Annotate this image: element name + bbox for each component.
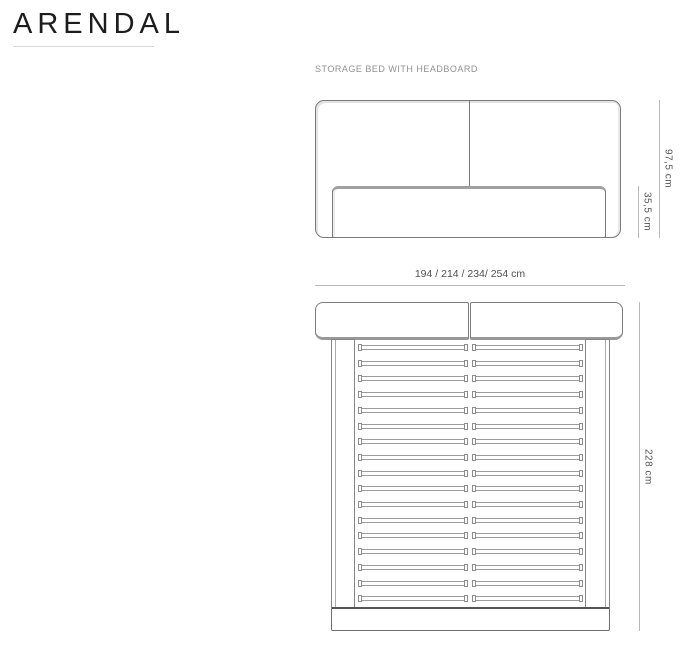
slat-clip xyxy=(464,344,468,351)
slat-clip xyxy=(358,423,362,430)
slat-clip xyxy=(579,485,583,492)
slat-clip xyxy=(358,407,362,414)
slat-left xyxy=(358,392,468,397)
dim-label-length: 228 cm xyxy=(642,302,654,631)
slat-clip xyxy=(472,595,476,602)
dim-line-width xyxy=(315,285,625,286)
slat-clip xyxy=(579,391,583,398)
slat-clip xyxy=(464,454,468,461)
slat-left xyxy=(358,518,468,523)
slat-left xyxy=(358,533,468,538)
spec-sheet-page: ARENDAL STORAGE BED WITH HEADBOARD 97,5 … xyxy=(0,0,690,650)
slat-clip xyxy=(464,532,468,539)
side-rail-right xyxy=(585,339,610,608)
slat-clip xyxy=(464,517,468,524)
slat-left xyxy=(358,455,468,460)
slat-left xyxy=(358,471,468,476)
slat-clip xyxy=(464,485,468,492)
slat-clip xyxy=(472,564,476,571)
slat-clip xyxy=(358,595,362,602)
slat-clip xyxy=(464,470,468,477)
slat-right xyxy=(472,486,583,491)
slat-clip xyxy=(464,595,468,602)
slat-clip xyxy=(579,548,583,555)
brand-title: ARENDAL xyxy=(13,8,185,41)
slat-clip xyxy=(579,407,583,414)
slat-right xyxy=(472,533,583,538)
dim-line-length xyxy=(639,302,640,631)
slat-clip xyxy=(579,580,583,587)
slat-left xyxy=(358,408,468,413)
side-rail-right-edge-line xyxy=(605,340,606,607)
slat-clip xyxy=(358,470,362,477)
slat-clip xyxy=(464,564,468,571)
dim-line-base-height xyxy=(638,186,639,238)
slat-right xyxy=(472,392,583,397)
headboard-top-right-panel xyxy=(470,302,623,340)
slat-clip xyxy=(579,375,583,382)
slat-clip xyxy=(472,501,476,508)
slat-clip xyxy=(579,423,583,430)
slat-clip xyxy=(358,391,362,398)
slat-clip xyxy=(464,391,468,398)
slat-clip xyxy=(579,470,583,477)
slat-right xyxy=(472,581,583,586)
headboard-top-left-panel xyxy=(315,302,469,340)
slat-clip xyxy=(472,391,476,398)
slat-right xyxy=(472,565,583,570)
slat-right xyxy=(472,345,583,350)
slat-clip xyxy=(472,517,476,524)
slat-clip xyxy=(358,344,362,351)
slat-left xyxy=(358,502,468,507)
slat-clip xyxy=(579,438,583,445)
dim-line-total-height xyxy=(659,100,660,238)
slat-left xyxy=(358,596,468,601)
slat-right xyxy=(472,455,583,460)
slat-left xyxy=(358,345,468,350)
slat-clip xyxy=(472,485,476,492)
slat-clip xyxy=(579,532,583,539)
slat-left xyxy=(358,361,468,366)
bed-base-front xyxy=(332,186,606,238)
slat-left xyxy=(358,549,468,554)
slat-clip xyxy=(579,501,583,508)
slat-clip xyxy=(472,344,476,351)
slat-clip xyxy=(472,548,476,555)
slat-clip xyxy=(358,548,362,555)
slat-right xyxy=(472,439,583,444)
slat-right xyxy=(472,596,583,601)
slat-clip xyxy=(358,360,362,367)
slat-clip xyxy=(358,485,362,492)
slat-clip xyxy=(358,438,362,445)
dim-label-base-height: 35,5 cm xyxy=(641,186,653,238)
slat-clip xyxy=(579,595,583,602)
slat-right xyxy=(472,471,583,476)
slat-right xyxy=(472,549,583,554)
slat-clip xyxy=(358,532,362,539)
slat-clip xyxy=(579,517,583,524)
slat-clip xyxy=(464,548,468,555)
slat-left xyxy=(358,376,468,381)
side-rail-left-edge-line xyxy=(335,340,336,607)
slat-clip xyxy=(579,360,583,367)
slat-left xyxy=(358,424,468,429)
slat-left xyxy=(358,581,468,586)
slat-clip xyxy=(358,375,362,382)
slat-area xyxy=(357,339,584,608)
slat-clip xyxy=(472,454,476,461)
slat-clip xyxy=(464,423,468,430)
slat-clip xyxy=(464,580,468,587)
slat-clip xyxy=(472,532,476,539)
slat-right xyxy=(472,502,583,507)
slat-clip xyxy=(579,344,583,351)
slat-clip xyxy=(579,564,583,571)
slat-right xyxy=(472,361,583,366)
slat-clip xyxy=(464,501,468,508)
slat-clip xyxy=(579,454,583,461)
slat-clip xyxy=(358,517,362,524)
side-rail-left xyxy=(331,339,355,608)
slat-right xyxy=(472,376,583,381)
headboard-front-split-line xyxy=(469,101,470,187)
product-type-label: STORAGE BED WITH HEADBOARD xyxy=(315,64,478,74)
slat-left xyxy=(358,439,468,444)
slat-clip xyxy=(358,580,362,587)
slat-clip xyxy=(472,360,476,367)
dim-label-width-options: 194 / 214 / 234/ 254 cm xyxy=(315,268,625,280)
slat-clip xyxy=(464,375,468,382)
slat-clip xyxy=(472,438,476,445)
slat-left xyxy=(358,486,468,491)
slat-right xyxy=(472,408,583,413)
slat-clip xyxy=(464,360,468,367)
slat-right xyxy=(472,518,583,523)
slat-clip xyxy=(358,454,362,461)
slat-clip xyxy=(472,407,476,414)
dim-label-total-height: 97,5 cm xyxy=(662,100,674,238)
slat-clip xyxy=(472,470,476,477)
slat-clip xyxy=(464,407,468,414)
slat-left xyxy=(358,565,468,570)
slat-clip xyxy=(472,423,476,430)
slat-clip xyxy=(358,564,362,571)
slat-clip xyxy=(358,501,362,508)
slat-clip xyxy=(472,375,476,382)
slat-right xyxy=(472,424,583,429)
footboard xyxy=(331,607,610,631)
slat-clip xyxy=(472,580,476,587)
brand-underline xyxy=(13,46,154,47)
slat-clip xyxy=(464,438,468,445)
